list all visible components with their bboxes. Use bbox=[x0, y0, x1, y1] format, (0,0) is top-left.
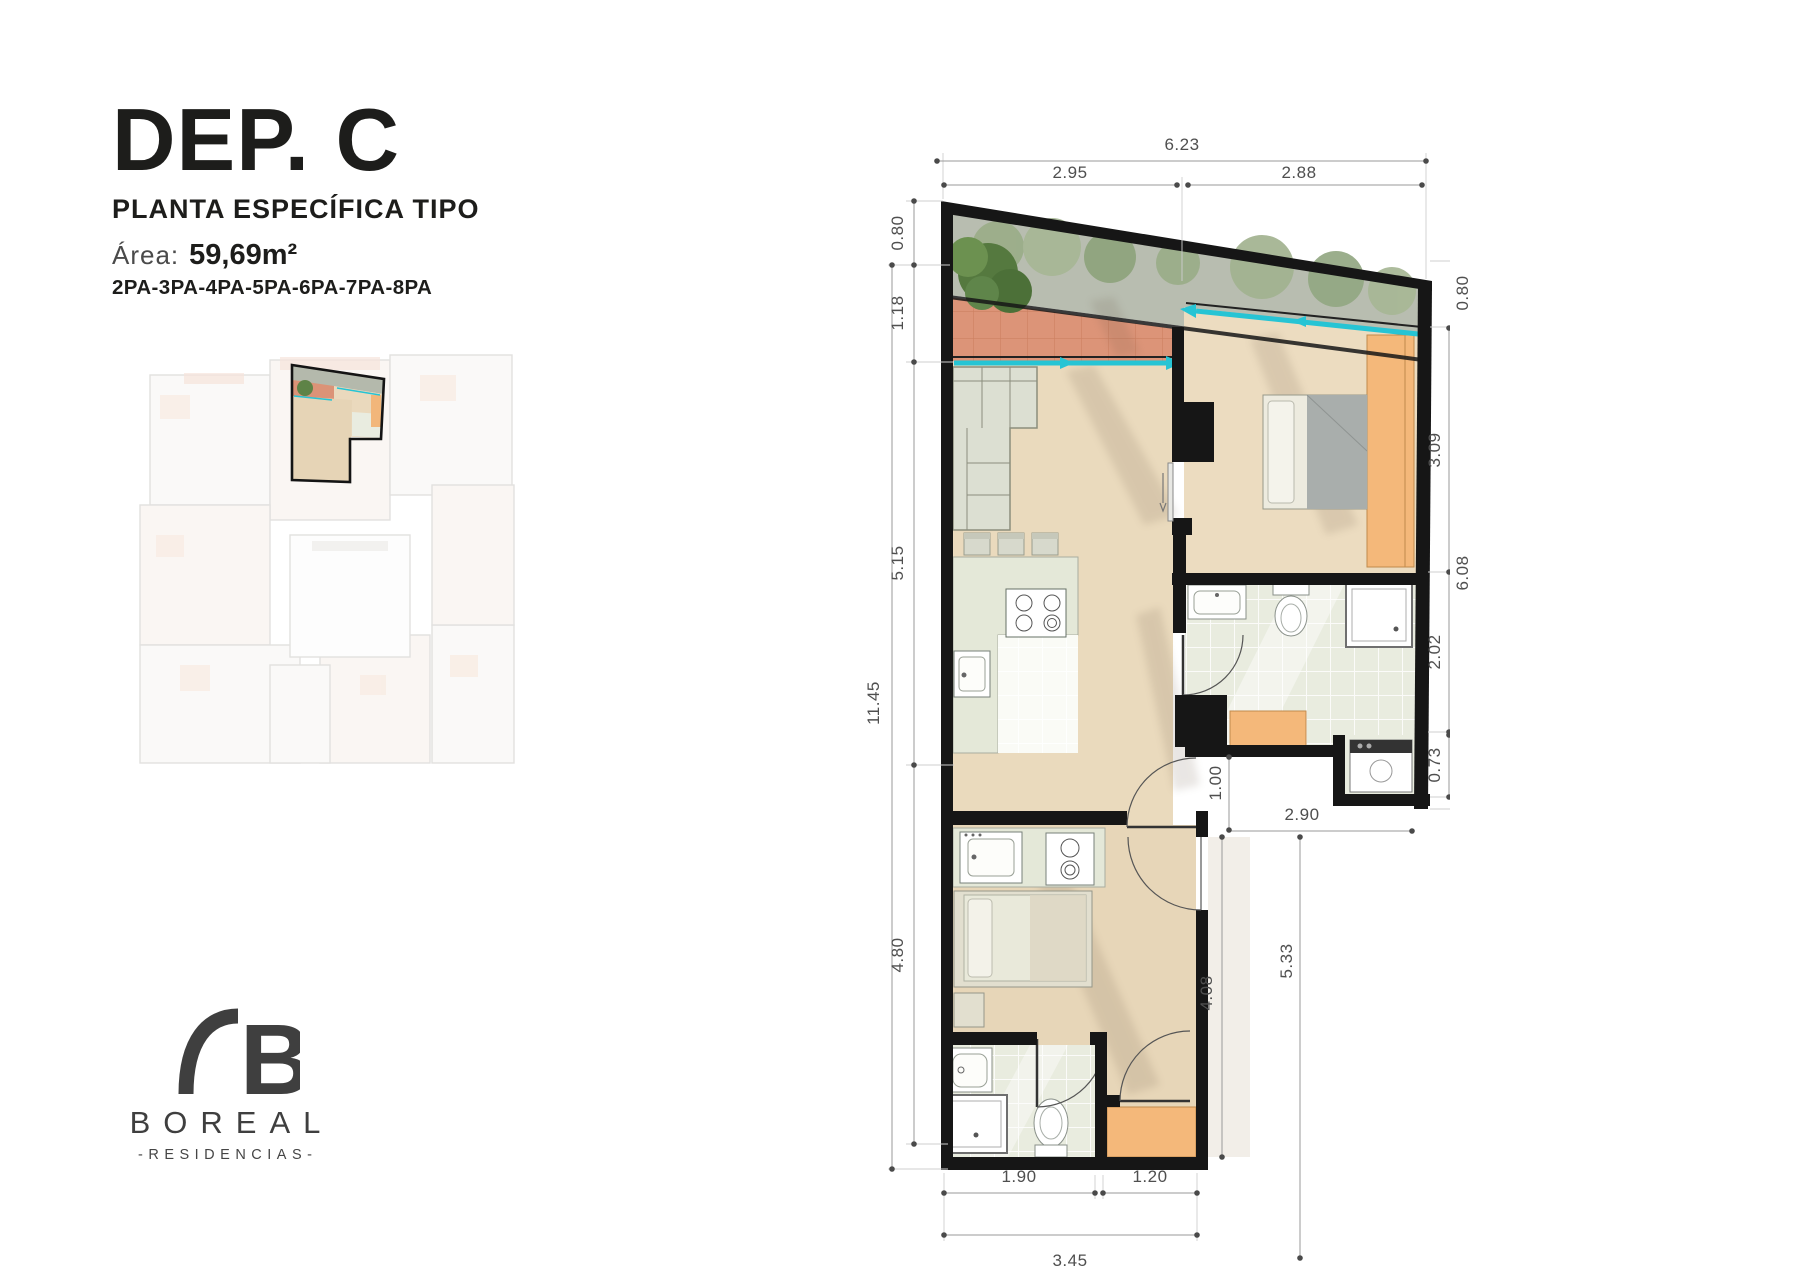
dim-left-2: 5.15 bbox=[888, 545, 908, 580]
dim-top-total: 6.23 bbox=[1164, 135, 1199, 155]
bar-stools bbox=[964, 533, 1058, 555]
page-subtitle: PLANTA ESPECÍFICA TIPO bbox=[112, 194, 480, 225]
dim-mid-inner: 4.08 bbox=[1197, 975, 1217, 1010]
dim-right-2: 2.02 bbox=[1425, 634, 1445, 669]
sliding-door bbox=[1168, 463, 1173, 521]
orange-cabinet bbox=[1230, 711, 1306, 749]
floor-plan: 6.23 2.95 2.88 0.80 1.18 5.15 4.80 11.45… bbox=[730, 95, 1450, 1273]
dim-mid-hall: 1.00 bbox=[1206, 765, 1226, 800]
toilet-icon bbox=[1275, 596, 1307, 636]
brochure-page: DEP. C PLANTA ESPECÍFICA TIPO Área: 59,6… bbox=[0, 0, 1800, 1273]
page-title: DEP. C bbox=[112, 96, 480, 184]
area-line: Área: 59,69m² bbox=[112, 239, 480, 272]
nightstand bbox=[954, 993, 984, 1027]
wardrobe bbox=[1367, 335, 1414, 567]
title-block: DEP. C PLANTA ESPECÍFICA TIPO Área: 59,6… bbox=[112, 96, 480, 300]
dim-right-3: 0.73 bbox=[1425, 747, 1445, 782]
overview-map bbox=[120, 335, 520, 770]
brand-name: BOREAL bbox=[100, 1105, 350, 1141]
dim-left-3: 4.80 bbox=[888, 937, 908, 972]
dim-mid-total: 5.33 bbox=[1277, 943, 1297, 978]
two-burner-stove-icon bbox=[1046, 833, 1094, 885]
dim-bottom-right: 1.20 bbox=[1132, 1167, 1167, 1187]
entry-closet bbox=[1107, 1107, 1196, 1157]
dim-left-0: 0.80 bbox=[888, 215, 908, 250]
shower-2-icon bbox=[945, 1095, 1007, 1153]
dim-left-total: 11.45 bbox=[864, 681, 884, 725]
unit-levels: 2PA-3PA-4PA-5PA-6PA-7PA-8PA bbox=[112, 276, 480, 300]
kitchen-sink-icon bbox=[954, 651, 990, 697]
dim-top-left: 2.95 bbox=[1052, 163, 1087, 183]
dim-right-0: 0.80 bbox=[1453, 275, 1473, 310]
dim-left-1: 1.18 bbox=[888, 295, 908, 330]
pillow bbox=[1268, 401, 1294, 503]
floor-plan-svg bbox=[730, 95, 1450, 1273]
logo-arc-icon bbox=[186, 1016, 238, 1094]
dim-mid-corridor: 2.90 bbox=[1284, 805, 1319, 825]
area-label: Área: bbox=[112, 240, 179, 271]
logo-monogram-letter: B bbox=[240, 1004, 300, 1098]
stove-icon bbox=[1006, 589, 1066, 637]
laundry-alcove bbox=[1350, 740, 1412, 792]
dim-right-total: 6.08 bbox=[1453, 555, 1473, 590]
overview-map-svg bbox=[120, 335, 520, 770]
kitchen bbox=[953, 557, 1078, 753]
dim-right-1: 3.09 bbox=[1425, 432, 1445, 467]
logo-monogram: B bbox=[150, 996, 300, 1098]
dim-bottom-left: 1.90 bbox=[1001, 1167, 1036, 1187]
brand-logo: B BOREAL -RESIDENCIAS- bbox=[100, 996, 350, 1163]
dim-top-right: 2.88 bbox=[1281, 163, 1316, 183]
pillow-2 bbox=[968, 899, 992, 977]
area-value: 59,69m² bbox=[189, 239, 297, 272]
brand-tagline: -RESIDENCIAS- bbox=[100, 1147, 350, 1163]
dim-bottom-total: 3.45 bbox=[1052, 1251, 1087, 1271]
shower-icon bbox=[1346, 583, 1412, 647]
